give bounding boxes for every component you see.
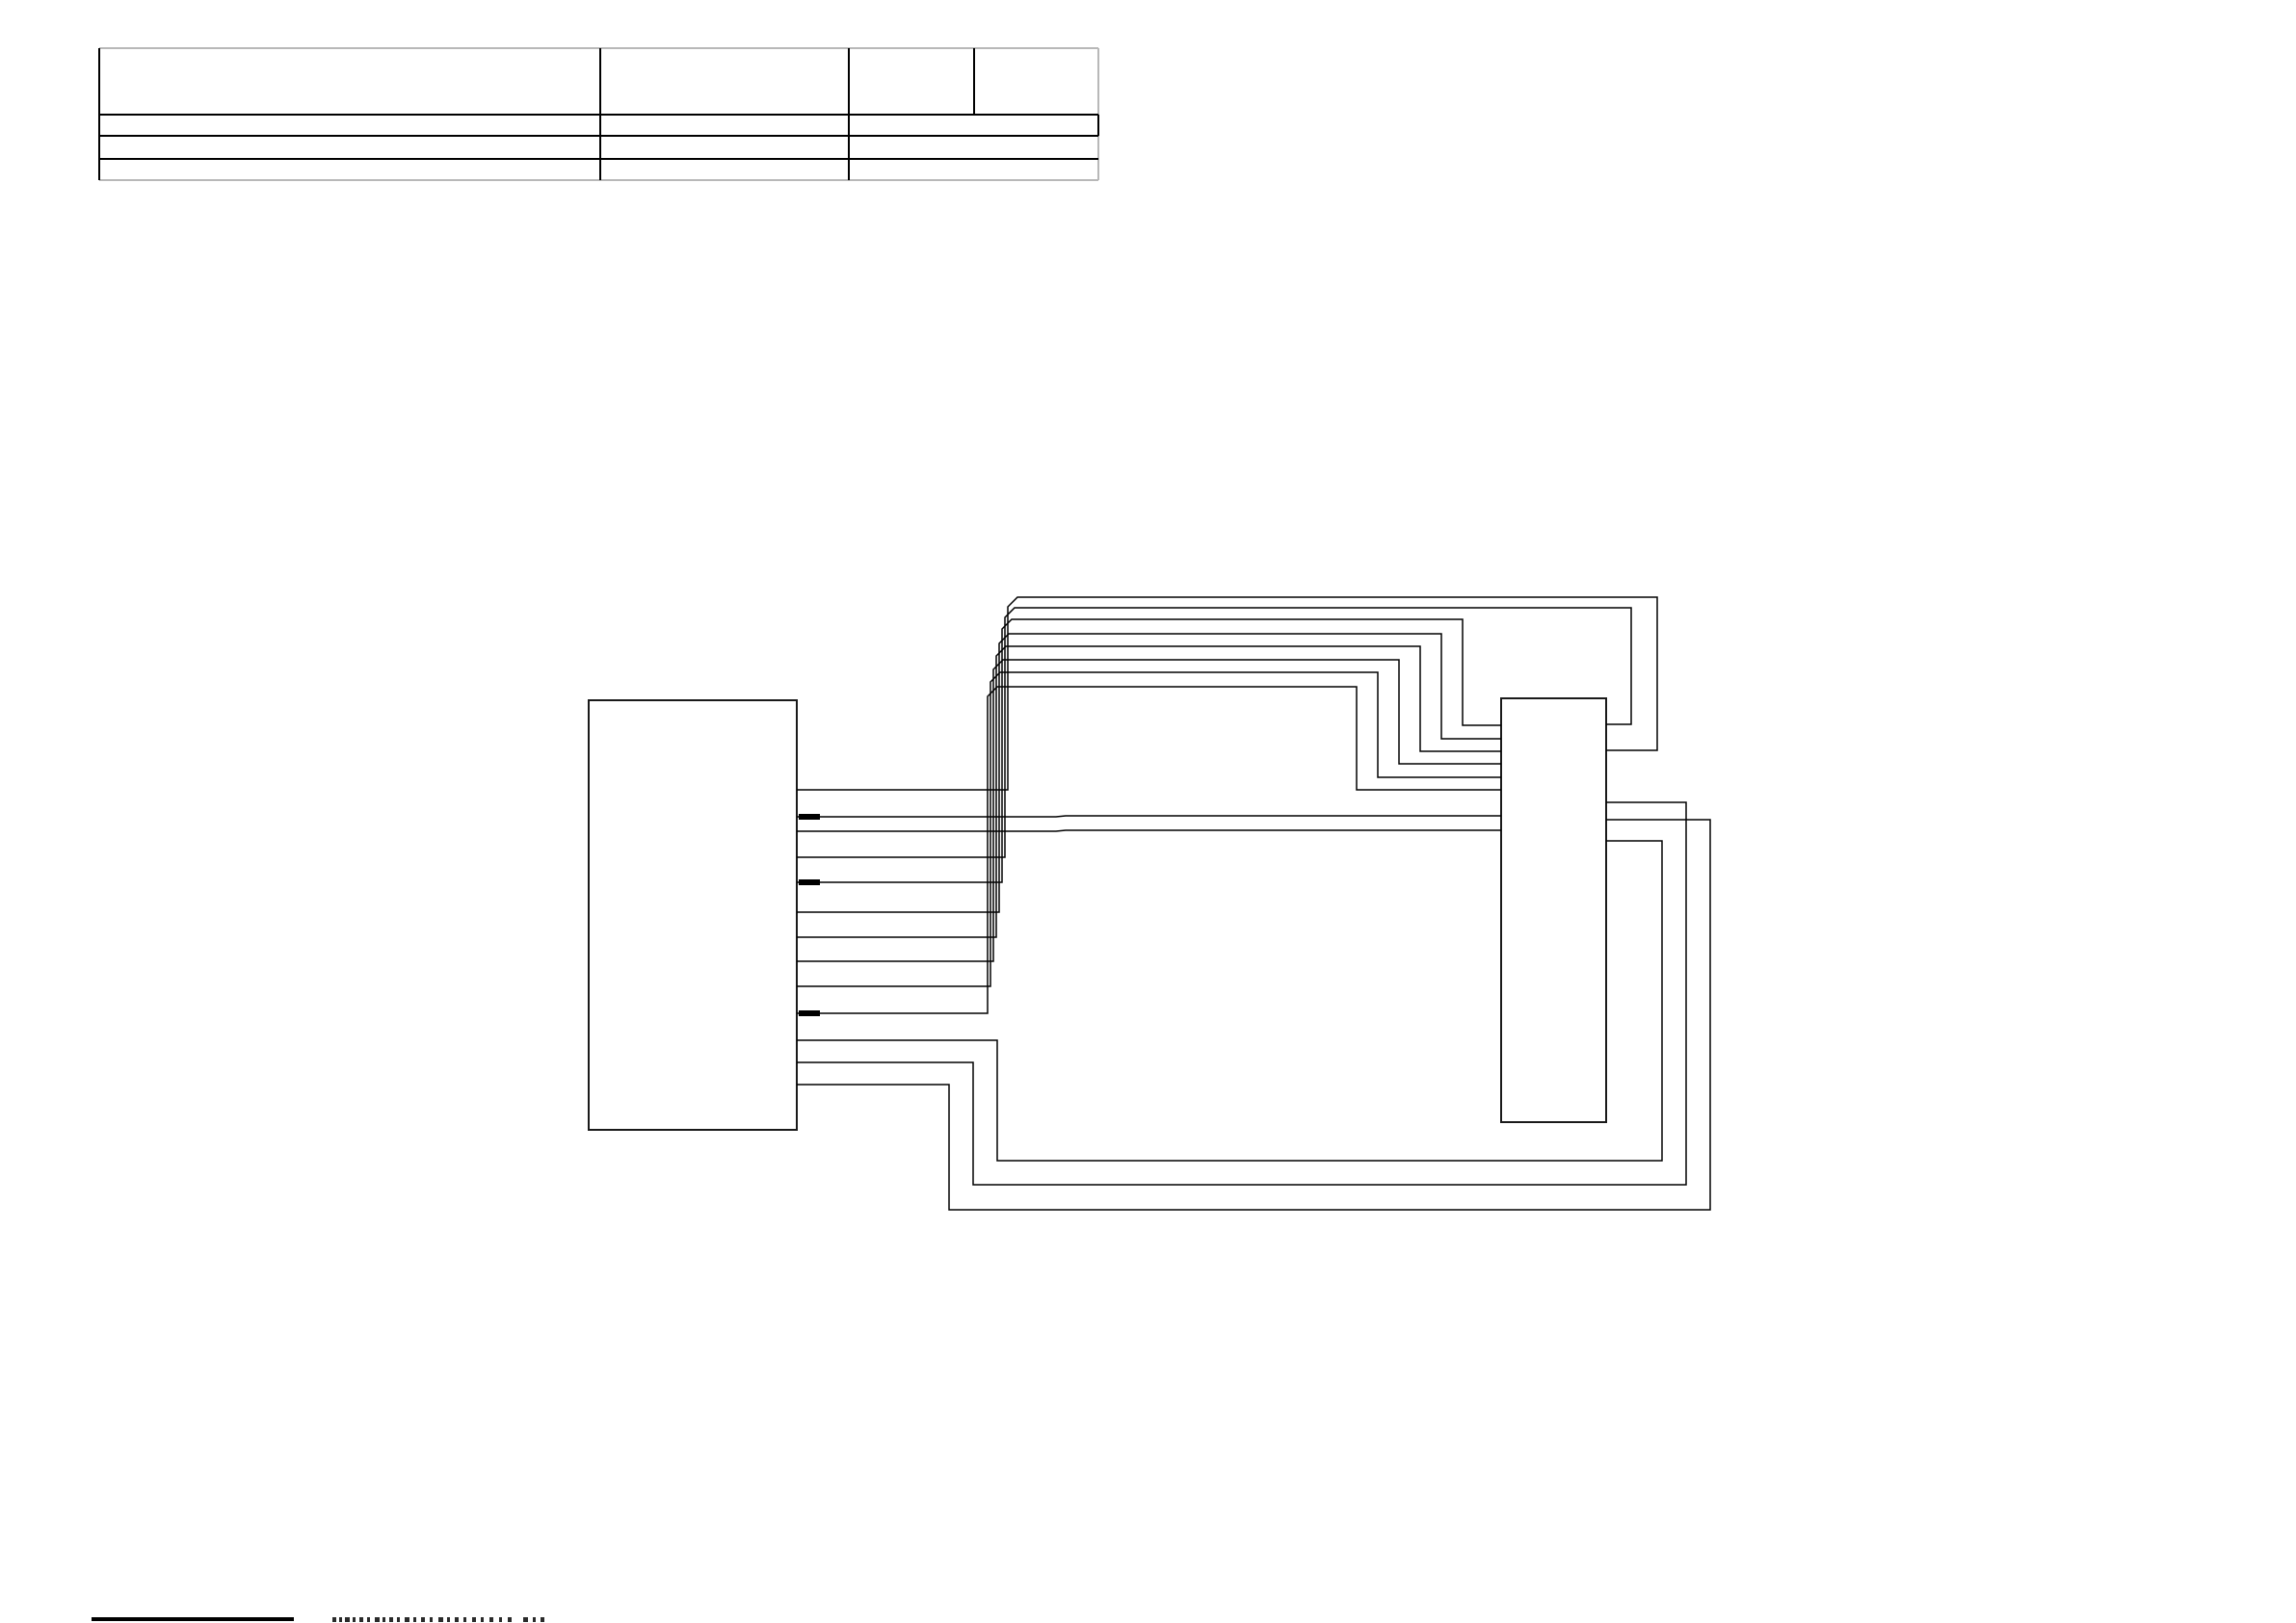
clipped-text-fragment bbox=[541, 1617, 544, 1622]
clipped-text-fragment bbox=[463, 1617, 466, 1622]
clipped-text-fragment bbox=[533, 1617, 536, 1622]
clipped-text-fragment bbox=[499, 1617, 502, 1622]
wire-m1 bbox=[797, 816, 1501, 817]
clipped-text-fragment bbox=[447, 1617, 450, 1622]
wire-m2 bbox=[797, 830, 1501, 831]
schematic-page bbox=[0, 0, 2296, 1623]
clipped-text-fragment bbox=[383, 1617, 385, 1622]
clipped-text-fragment bbox=[359, 1617, 363, 1622]
clipped-text-fragment bbox=[389, 1617, 393, 1622]
clipped-text-fragment bbox=[413, 1617, 416, 1622]
wire-n3 bbox=[797, 634, 1501, 912]
clipped-text-fragment bbox=[375, 1617, 380, 1622]
clipped-text-fragment bbox=[472, 1617, 476, 1622]
wire-n6 bbox=[797, 672, 1501, 986]
wire-n7 bbox=[797, 687, 1501, 1013]
title-block-table bbox=[99, 48, 1098, 180]
clipped-text-fragment bbox=[455, 1617, 459, 1622]
clipped-text-fragment bbox=[345, 1617, 350, 1622]
clipped-text-fragment bbox=[339, 1617, 342, 1622]
footer-marks bbox=[92, 1617, 544, 1622]
clipped-text-fragment bbox=[430, 1617, 433, 1622]
wire-n5 bbox=[797, 660, 1501, 961]
clipped-text-fragment bbox=[367, 1617, 370, 1622]
clipped-text-fragment bbox=[508, 1617, 512, 1622]
clipped-text-fragment bbox=[421, 1617, 425, 1622]
clipped-text-fragment bbox=[489, 1617, 493, 1622]
wire-n4 bbox=[797, 646, 1501, 937]
clipped-text-fragment bbox=[481, 1617, 484, 1622]
clipped-text-fragment bbox=[523, 1617, 528, 1622]
schematic-canvas bbox=[0, 0, 2296, 1623]
clipped-text-fragment bbox=[438, 1617, 443, 1622]
wire-n2 bbox=[797, 619, 1501, 882]
clipped-text-fragment bbox=[353, 1617, 356, 1622]
clipped-text-fragment bbox=[397, 1617, 400, 1622]
clipped-text-fragment bbox=[332, 1617, 336, 1622]
left-component bbox=[589, 700, 797, 1130]
clipped-text-fragment bbox=[405, 1617, 409, 1622]
right-component bbox=[1501, 698, 1606, 1122]
component-blocks bbox=[589, 698, 1606, 1130]
